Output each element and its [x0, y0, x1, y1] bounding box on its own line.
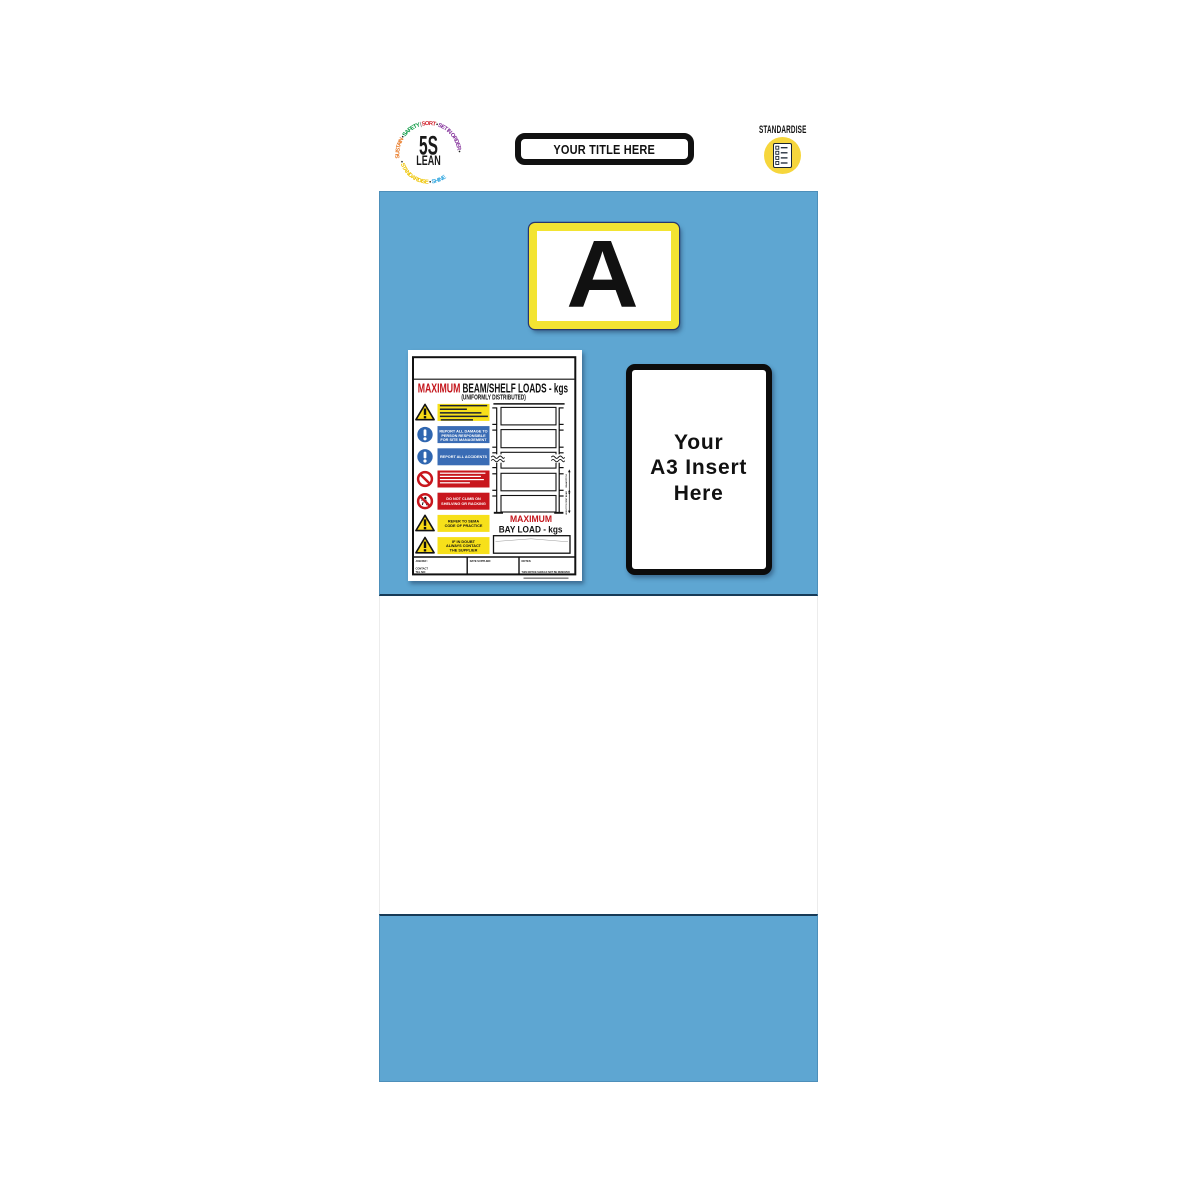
svg-text:HEIGHT TO FIRST BEAM: HEIGHT TO FIRST BEAM [565, 491, 568, 515]
svg-text:(UNIFORMLY DISTRIBUTED): (UNIFORMLY DISTRIBUTED) [461, 392, 526, 401]
svg-text:MAXIMUM: MAXIMUM [510, 514, 552, 524]
svg-text:CODE OF PRACTICE: CODE OF PRACTICE [445, 524, 483, 528]
svg-text:TEL NO:: TEL NO: [416, 570, 426, 574]
svg-text:MAXIMUM: MAXIMUM [418, 382, 461, 396]
svg-text:SHELVING OR RACKING: SHELVING OR RACKING [441, 502, 486, 506]
svg-text:FOR SITE MANAGEMENT: FOR SITE MANAGEMENT [440, 438, 487, 442]
svg-text:THE SUPPLIER: THE SUPPLIER [450, 548, 478, 552]
svg-text:REFER TO SEMA: REFER TO SEMA [448, 519, 479, 523]
svg-text:LEAN: LEAN [416, 152, 441, 168]
svg-text:BEAM PITCH: BEAM PITCH [565, 474, 568, 487]
svg-text:BAY LOAD - kgs: BAY LOAD - kgs [499, 524, 563, 535]
svg-text:DATE SUPPLIED:: DATE SUPPLIED: [470, 559, 492, 563]
svg-text:JOB REF:: JOB REF: [416, 559, 428, 563]
svg-text:REPORT ALL ACCIDENTS: REPORT ALL ACCIDENTS [440, 455, 488, 459]
svg-text:NOTES:: NOTES: [522, 559, 532, 563]
svg-text:THIS NOTICE SHOULD NOT BE REMO: THIS NOTICE SHOULD NOT BE REMOVED [522, 571, 571, 574]
svg-text:DO NOT CLIMB ON: DO NOT CLIMB ON [446, 497, 481, 501]
